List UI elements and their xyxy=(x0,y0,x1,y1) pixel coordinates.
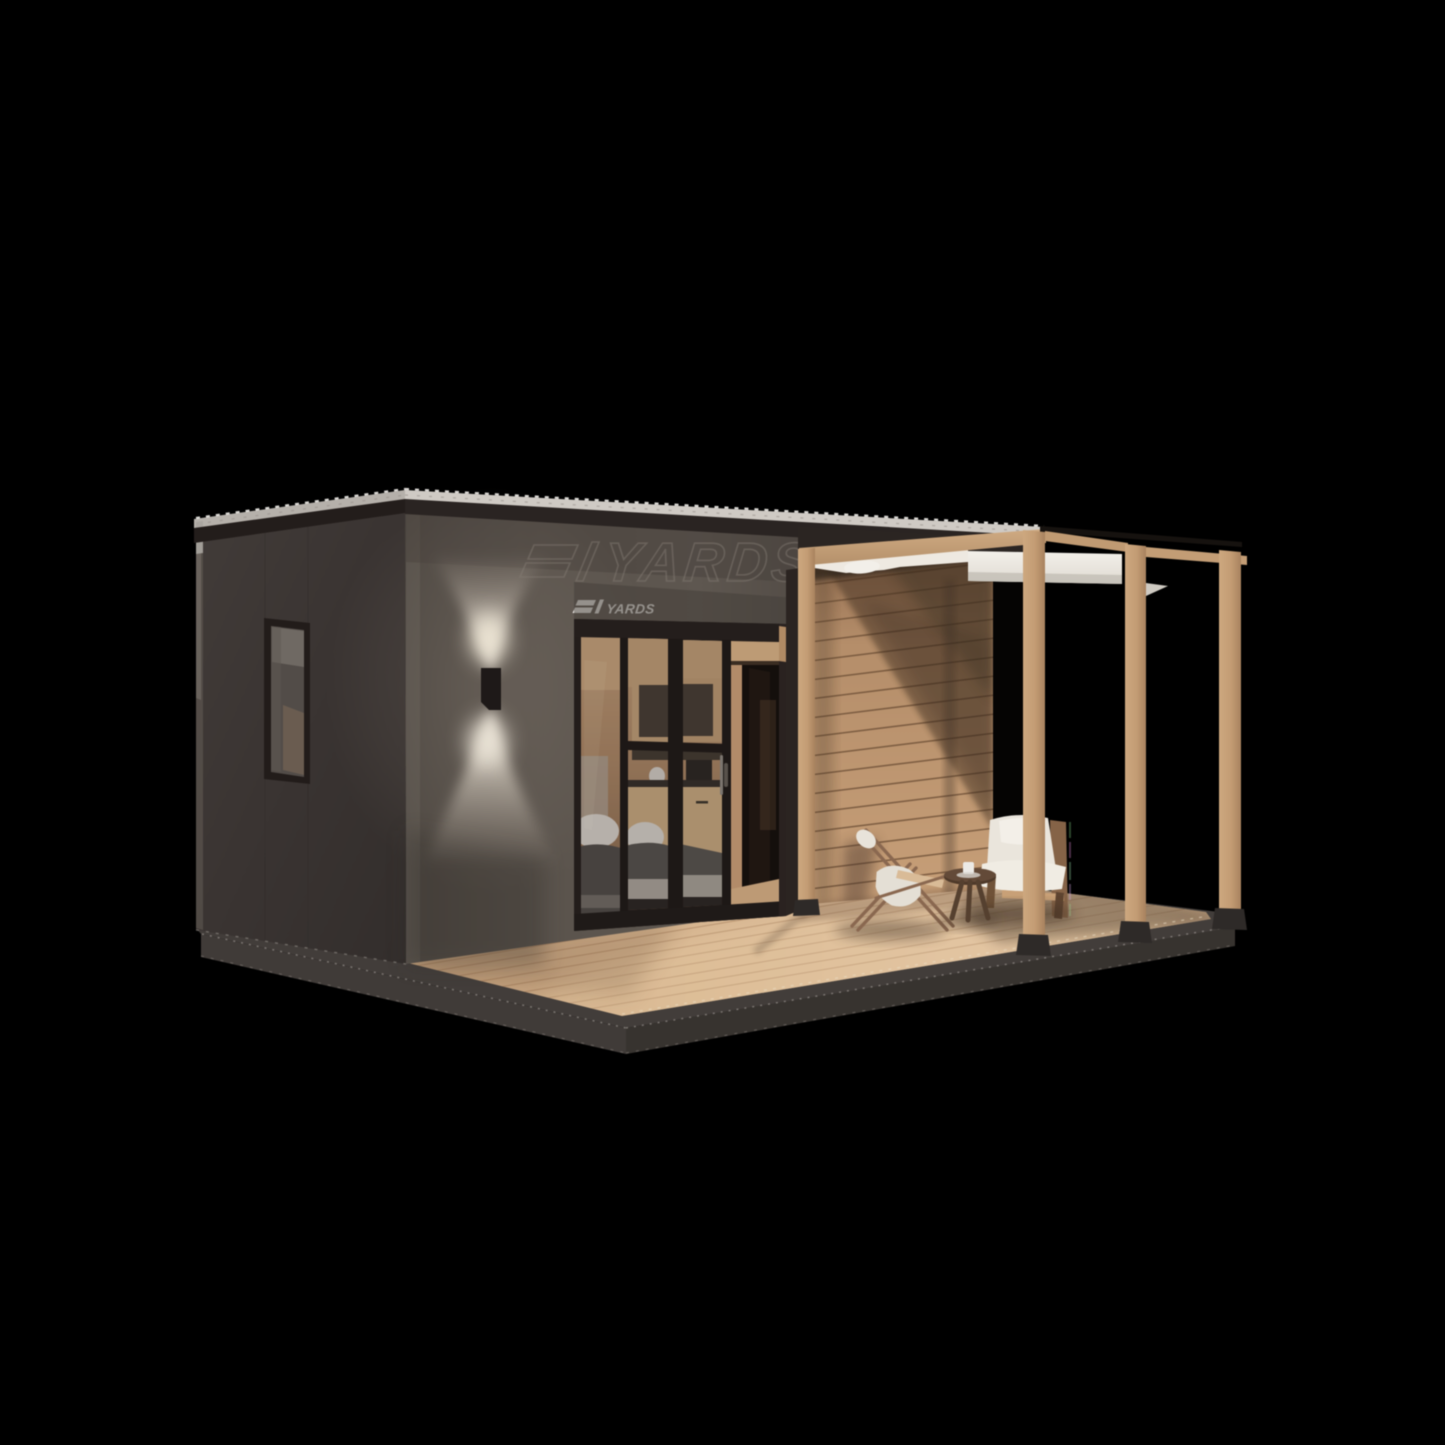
svg-text:YARDS: YARDS xyxy=(601,531,816,593)
